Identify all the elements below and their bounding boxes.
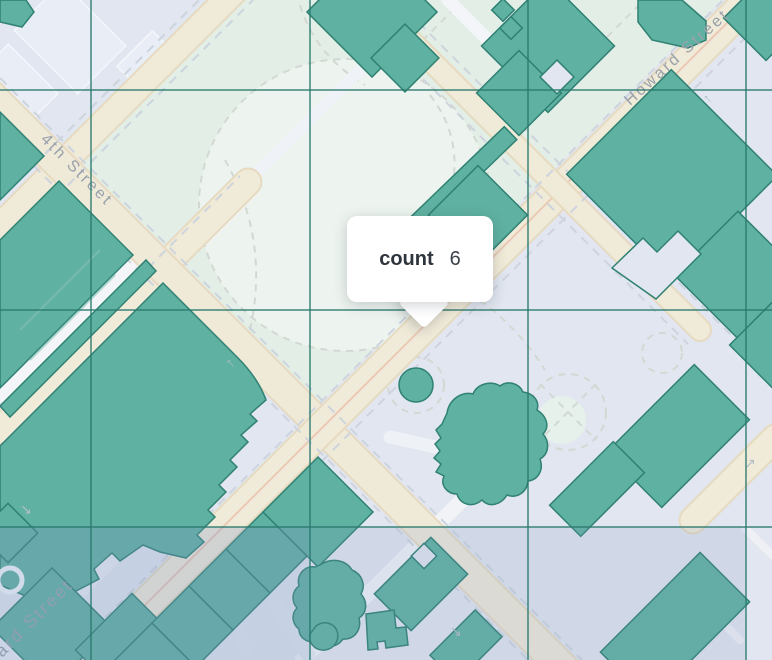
tooltip: count 6 bbox=[347, 216, 493, 302]
grid-cell-tint bbox=[0, 527, 746, 660]
map-screenshot: 4th Street Howard Street Howard Street ←… bbox=[0, 0, 772, 660]
tooltip-value: 6 bbox=[450, 248, 461, 271]
oneway-arrow-icon: ↘ bbox=[20, 501, 32, 517]
tooltip-label: count bbox=[379, 248, 433, 271]
map-canvas[interactable]: 4th Street Howard Street Howard Street ←… bbox=[0, 0, 772, 660]
